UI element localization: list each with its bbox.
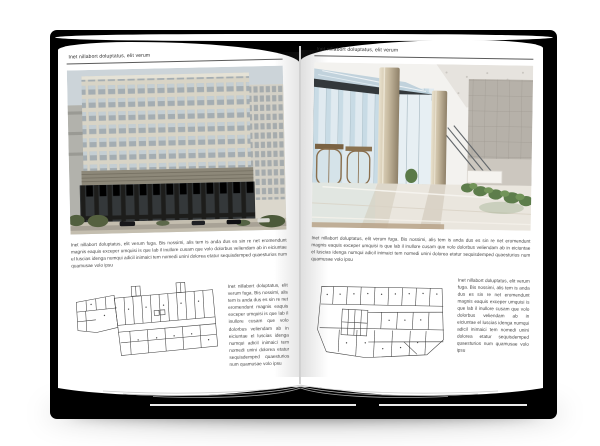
left-body-paragraph: Inet nillabort doluptatus, elit verum fu… [71,237,288,270]
lobby-interior-photo [312,62,534,230]
right-page-content: Inet nillabort doluptatus, elit verum [310,46,534,368]
building-exterior-photo [67,65,287,234]
book-mockup: Inet nillabort doluptatus, elit verum [0,0,600,446]
left-floor-plan-drawing [72,281,221,368]
right-header-rule [314,55,533,59]
book-spine [299,46,301,384]
left-page-content: Inet nillabort doluptatus, elit verum [66,50,289,372]
right-floor-plan-drawing [310,274,451,367]
right-body-paragraph: Inet nillabort doluptatus, elit verum fu… [311,234,530,266]
right-sidebar-paragraph: Inet nillabort doluptatus, elit verum fu… [457,276,530,355]
left-sidebar-paragraph: Inet nillabort doluptatus, elit verum fu… [228,282,290,368]
